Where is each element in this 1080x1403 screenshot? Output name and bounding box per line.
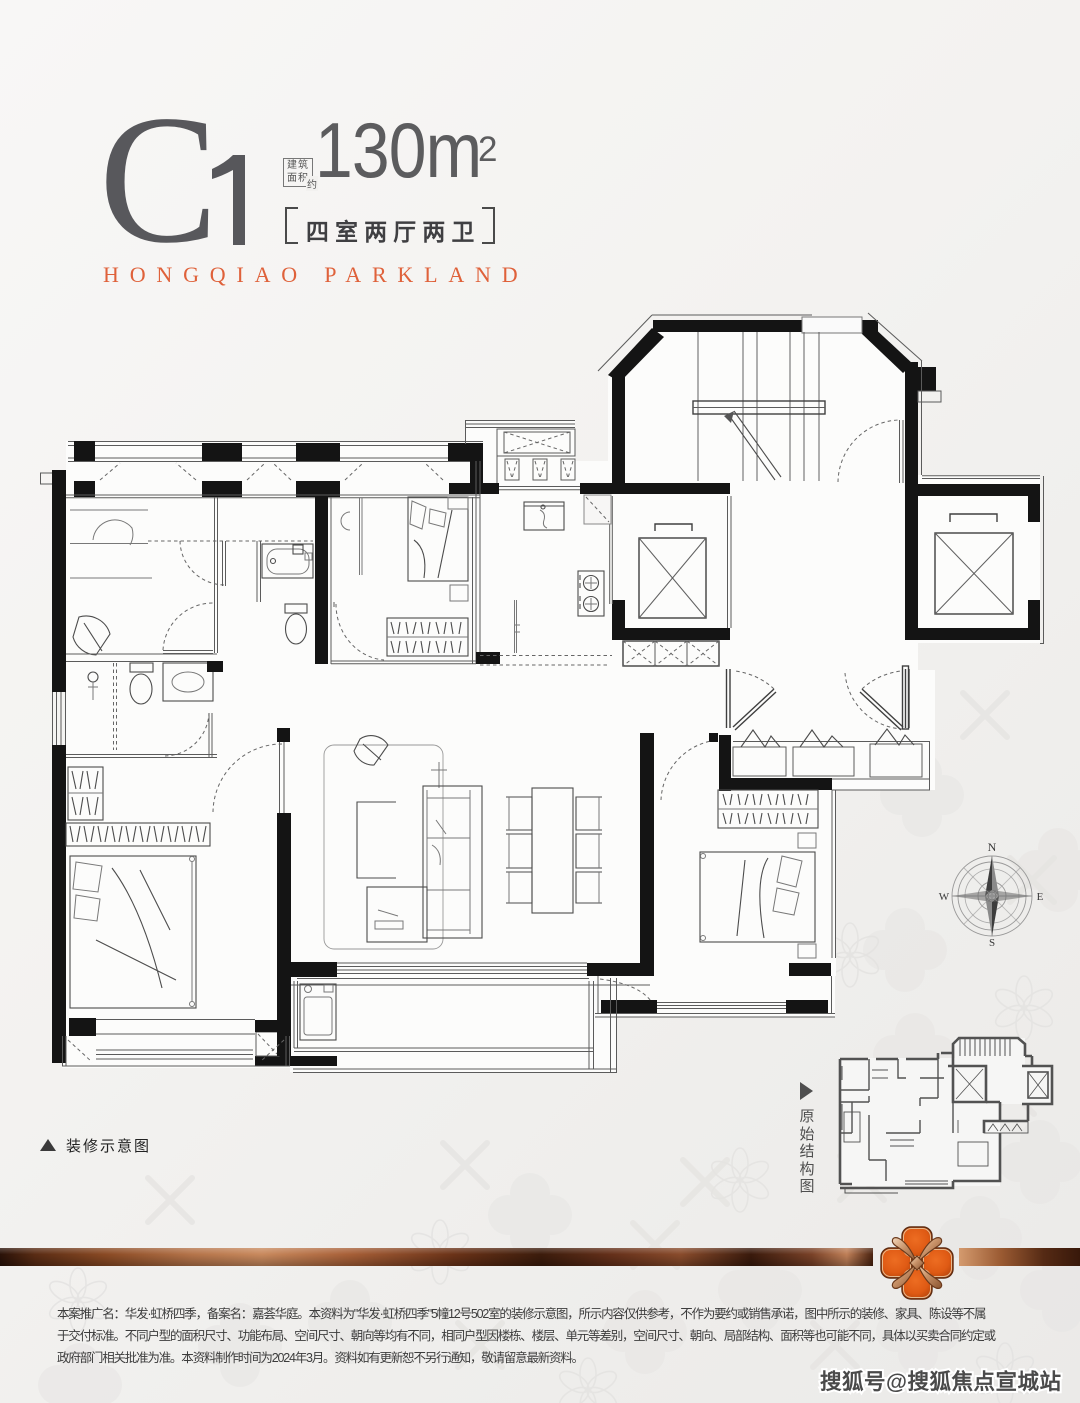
svg-text:N: N xyxy=(988,840,997,854)
svg-text:S: S xyxy=(989,937,995,949)
svg-text:E: E xyxy=(1037,891,1044,903)
svg-text:W: W xyxy=(939,891,950,903)
